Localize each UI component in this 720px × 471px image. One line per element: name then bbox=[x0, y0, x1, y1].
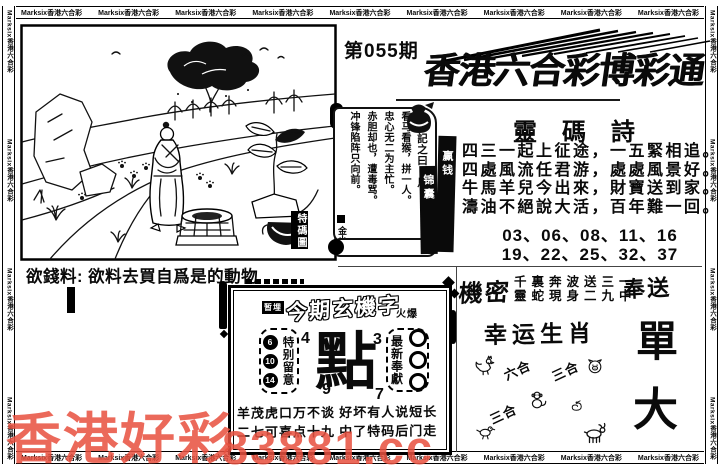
marquee-text: Marksix香港六合彩 bbox=[4, 10, 14, 73]
latest-offering-box: 最新奉獻 bbox=[386, 328, 429, 392]
marquee-text: Marksix香港六合彩 bbox=[98, 8, 159, 18]
tip-illustration bbox=[20, 24, 337, 261]
numbers-row: 03、06、08、11、16 bbox=[472, 226, 708, 245]
blank-circles bbox=[409, 329, 427, 391]
latest-offering-label: 最新奉獻 bbox=[389, 335, 406, 385]
marquee-text: Marksix香港六合彩 bbox=[252, 8, 313, 18]
bet-hint-odd: 單 bbox=[636, 322, 678, 364]
rooster-icon bbox=[474, 354, 496, 376]
marquee-text: Marksix香港六合彩 bbox=[484, 453, 545, 463]
well bbox=[176, 209, 238, 245]
bet-hint-big: 大 bbox=[633, 388, 678, 433]
gift-label: 奉送 bbox=[622, 270, 672, 304]
marquee-text: Marksix香港六合彩 bbox=[561, 8, 622, 18]
horizon-trees bbox=[168, 90, 302, 120]
tree bbox=[167, 42, 259, 112]
poem-line: 牛馬羊兒今出來，財寶送到家。 bbox=[462, 180, 712, 199]
tag-text: 锦囊 bbox=[420, 174, 437, 254]
poem-line: 四三一起上征途，一五緊相追。 bbox=[462, 143, 712, 162]
secret-verse: 千裏奔波送三一 靈蛇現身二九中 bbox=[514, 275, 637, 303]
numbers-row: 19、22、25、32、37 bbox=[472, 245, 708, 264]
marquee-text: Marksix香港六合彩 bbox=[638, 453, 699, 463]
poem-title: 靈碼詩 bbox=[513, 112, 660, 147]
secret-line: 千裏奔波送三一 bbox=[514, 275, 637, 289]
border-marquee-top: Marksix香港六合彩Marksix香港六合彩Marksix香港六合彩Mark… bbox=[16, 6, 704, 19]
snake-icon bbox=[567, 399, 585, 417]
mystery-verse: 羊茂虎口万不谈 好坏有人说短长 bbox=[237, 401, 437, 422]
special-attention-box: 6 10 14 特别留意 bbox=[259, 328, 299, 394]
watermark-brand: 香港好彩 bbox=[6, 394, 234, 471]
hot-label: 火爆 bbox=[396, 305, 418, 320]
zodiac-label: 三合 bbox=[548, 356, 581, 385]
masthead: 香港六合彩博彩通 bbox=[422, 28, 714, 96]
riddle-line: 冲锋陷阵只向前。 bbox=[345, 111, 362, 235]
marquee-text: Marksix香港六合彩 bbox=[4, 139, 14, 202]
rocks bbox=[34, 94, 116, 203]
mystery-panel-title: 今期玄機字 bbox=[286, 289, 402, 327]
corner-number: 4 bbox=[301, 330, 310, 348]
lottery-sheet-page: Marksix香港六合彩Marksix香港六合彩Marksix香港六合彩Mark… bbox=[0, 0, 720, 471]
secret-line: 靈蛇現身二九中 bbox=[514, 289, 637, 303]
plant bbox=[246, 123, 318, 218]
ink-bottle-icon bbox=[400, 100, 438, 136]
marquee-text: Marksix香港六合彩 bbox=[407, 8, 468, 18]
mystery-character: 點 bbox=[315, 332, 377, 394]
poem-line: 濤油不絕說大活，百年難一回。 bbox=[462, 199, 712, 218]
poem-body: 四三一起上征途，一五緊相追。 四處風流任君游，處處風景好。 牛馬羊兒今出來，財寶… bbox=[462, 143, 712, 217]
issue-number: 第055期 bbox=[344, 36, 419, 63]
tag-strip-win-money: 赢钱 bbox=[435, 136, 456, 252]
caption-text: 欲料去買自爲是的動物 bbox=[88, 268, 258, 286]
marquee-text: Marksix香港六合彩 bbox=[21, 8, 82, 18]
signature-square bbox=[337, 215, 345, 223]
marquee-text: Marksix香港六合彩 bbox=[4, 268, 14, 331]
section-divider-horizontal bbox=[338, 266, 702, 267]
attention-numbers: 6 10 14 bbox=[263, 335, 278, 388]
tag-strip-tip-bag: 锦囊 bbox=[419, 166, 438, 254]
marquee-text: Marksix香港六合彩 bbox=[707, 397, 717, 460]
tag-text: 赢钱 bbox=[436, 150, 455, 252]
attention-label: 特别留意 bbox=[280, 336, 296, 386]
riddle-line: 忠心无二为主忙。 bbox=[379, 111, 396, 235]
recommended-numbers: 03、06、08、11、16 19、22、25、32、37 bbox=[472, 226, 708, 264]
caption-label: 欲錢料: bbox=[26, 268, 83, 286]
monkey-icon bbox=[526, 389, 548, 411]
zodiac-label: 六合 bbox=[500, 355, 533, 384]
marquee-text: Marksix香港六合彩 bbox=[707, 268, 717, 331]
page-title: 香港六合彩博彩通 bbox=[420, 42, 707, 94]
attention-number: 14 bbox=[263, 373, 278, 388]
attention-number: 6 bbox=[263, 335, 278, 350]
blank-circle bbox=[409, 351, 427, 369]
ink-mark bbox=[67, 287, 75, 313]
attention-number: 10 bbox=[263, 354, 278, 369]
secret-label: 機密 bbox=[458, 272, 513, 309]
person-figure bbox=[150, 122, 185, 232]
panel-tag: 暂埋 bbox=[262, 301, 284, 314]
marquee-text: Marksix香港六合彩 bbox=[561, 453, 622, 463]
marquee-text: Marksix香港六合彩 bbox=[638, 8, 699, 18]
panel-ornament-rod bbox=[219, 281, 227, 329]
scroll-roll-cap bbox=[328, 239, 344, 255]
blank-circle bbox=[409, 373, 427, 391]
pig-icon bbox=[585, 356, 605, 376]
panel-ornament-tassel bbox=[220, 330, 228, 338]
marquee-text: Marksix香港六合彩 bbox=[329, 8, 390, 18]
goat-icon bbox=[583, 421, 607, 445]
blank-circle bbox=[409, 329, 427, 347]
marquee-text: Marksix香港六合彩 bbox=[175, 8, 236, 18]
panel-ornament-chain bbox=[246, 279, 304, 284]
riddle-line: 赤胆却也，遭毒骂。 bbox=[362, 111, 379, 235]
lucky-zodiac-title: 幸运生肖 bbox=[484, 314, 597, 350]
special-code-seal: 特碼圖 bbox=[291, 211, 308, 249]
marquee-text: Marksix香港六合彩 bbox=[484, 8, 545, 18]
poem-line: 四處風流任君游，處處風景好。 bbox=[462, 162, 712, 181]
watermark-site: 83881.cc bbox=[222, 420, 434, 471]
bird-icon bbox=[476, 421, 496, 441]
